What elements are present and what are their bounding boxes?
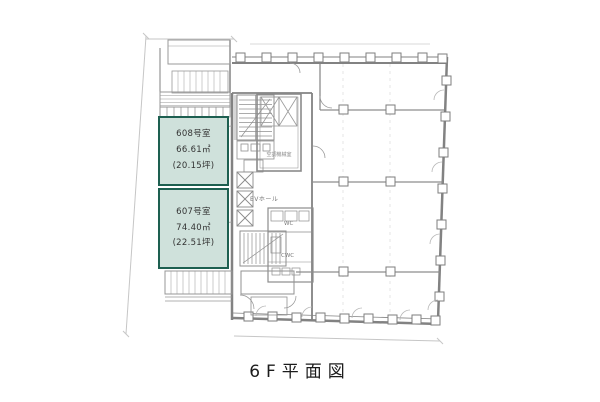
room-607-area-sqm: 74.40㎡ — [176, 221, 211, 237]
floorplan-canvas: 608号室 66.61㎡ (20.15坪) 607号室 74.40㎡ (22.5… — [0, 0, 600, 402]
label-wc: WC — [284, 221, 293, 227]
room-607-name: 607号室 — [176, 205, 211, 221]
window-arcs — [256, 90, 444, 320]
label-ev-hall: EVホール — [250, 194, 278, 203]
room-608-area-sqm: 66.61㎡ — [176, 143, 211, 159]
door-arcs — [219, 63, 332, 235]
floorplan-caption: 6F平面図 — [0, 357, 600, 382]
partition-walls — [296, 64, 444, 317]
topleft-block — [168, 40, 230, 93]
room-608-area-tsubo: (20.15坪) — [173, 159, 215, 175]
balcony-bottom — [165, 271, 232, 301]
room-608: 608号室 66.61㎡ (20.15坪) — [158, 116, 229, 186]
label-machine-room: 空調機械室 — [258, 151, 300, 158]
floorplan-linework — [0, 0, 600, 402]
room-607: 607号室 74.40㎡ (22.51坪) — [158, 188, 229, 269]
balcony-top — [160, 92, 230, 107]
room-608-name: 608号室 — [176, 127, 211, 143]
stairs-lower-icon — [240, 231, 286, 266]
label-cwc: CWC — [281, 253, 294, 259]
room-607-area-tsubo: (22.51坪) — [173, 236, 215, 252]
stairs-upper-icon — [233, 95, 274, 140]
